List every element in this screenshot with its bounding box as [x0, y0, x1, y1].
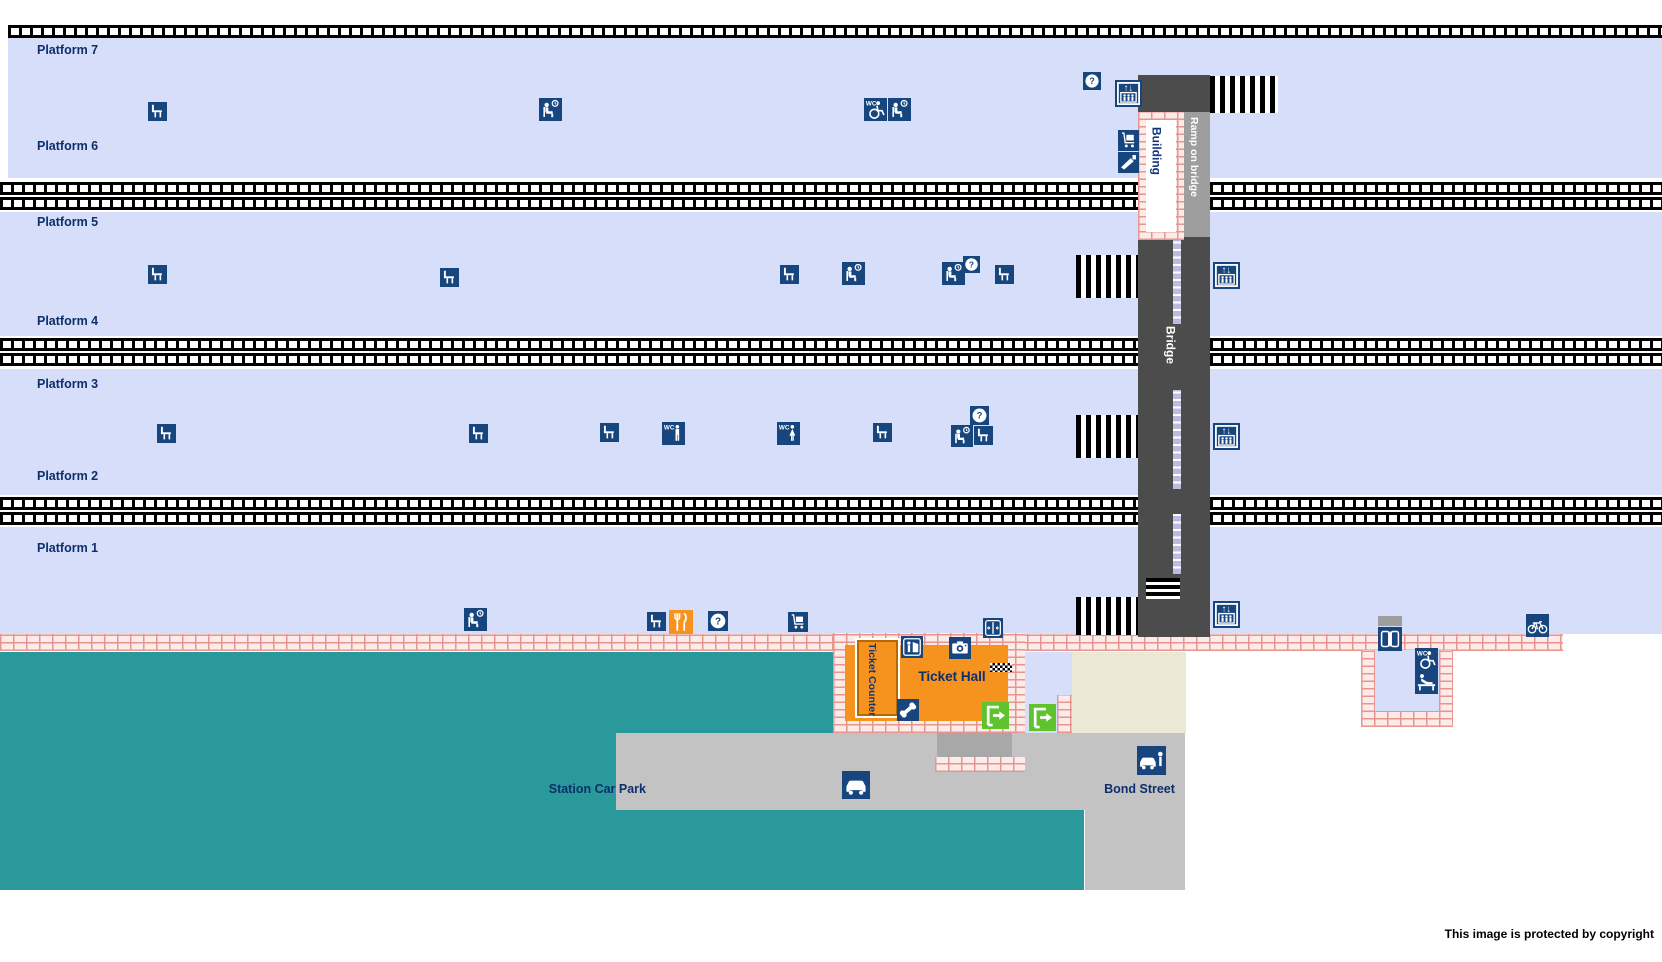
lift-icon: ↑↓	[1213, 262, 1240, 289]
svg-text:WC: WC	[1417, 651, 1428, 658]
waiting-room-icon	[842, 262, 865, 285]
bench-icon	[148, 265, 167, 284]
cycle-storage-icon	[1526, 614, 1549, 637]
stairs-platform-3	[1076, 415, 1138, 458]
label-platform-1: Platform 1	[37, 542, 98, 555]
bench-icon	[440, 268, 459, 287]
waiting-room-icon	[951, 425, 973, 447]
platform-3-2-band	[0, 369, 1662, 495]
platform-7-6-band	[8, 38, 1662, 178]
bridge-ramp-segment-3	[1173, 514, 1181, 574]
track-4	[0, 338, 1662, 351]
platform-1-band	[0, 527, 1662, 634]
bench-icon	[780, 265, 799, 284]
entrance-exit-icon	[1029, 704, 1056, 731]
lift-icon: ↑↓	[1115, 80, 1142, 107]
luggage-trolley-icon	[1118, 130, 1139, 151]
stairs-bridge-top	[1210, 76, 1278, 113]
main-platform-wall	[0, 634, 1563, 651]
label-ramp-on-bridge: Ramp on bridge	[1188, 117, 1199, 197]
green-area-lower	[0, 810, 1084, 890]
toilet-block-bottom-wall	[1361, 711, 1453, 727]
svg-text:?: ?	[715, 616, 721, 627]
track-5	[0, 353, 1662, 366]
label-bridge: Bridge	[1164, 326, 1177, 364]
stairs-platform-5	[1076, 255, 1138, 298]
label-platform-2: Platform 2	[37, 470, 98, 483]
toilet-doorway-canopy	[1378, 616, 1402, 626]
telephone-icon	[897, 699, 919, 721]
label-bond-street: Bond Street	[1092, 783, 1187, 796]
mens-toilet-icon: WC	[662, 422, 685, 445]
waiting-room-icon	[464, 608, 487, 631]
bond-street-road	[1085, 733, 1185, 890]
track-1	[8, 25, 1662, 38]
waiting-room-icon	[942, 262, 965, 285]
luggage-trolley-icon	[788, 612, 808, 632]
corridor-side-wall	[1057, 695, 1072, 733]
help-point-icon: ?	[970, 406, 989, 425]
pick-up-point-icon	[1137, 746, 1166, 775]
svg-text:?: ?	[969, 259, 974, 269]
label-building: Building	[1150, 127, 1163, 175]
help-point-icon: ?	[1083, 72, 1101, 90]
station-map: WC?↑↓?↑↓WCWC?↑↓?↑↓WCPlatform 7Platform 6…	[0, 0, 1662, 962]
accessible-toilet-icon: WC	[1415, 648, 1438, 671]
lift-icon: ↑↓	[1213, 423, 1240, 450]
bench-icon	[647, 612, 666, 631]
ticket-machine-icon	[901, 636, 923, 658]
label-ticket-hall: Ticket Hall	[900, 670, 1004, 684]
refreshments-icon	[669, 610, 693, 634]
station-forecourt	[1072, 652, 1186, 733]
platform-5-4-band	[0, 212, 1662, 336]
bench-icon	[974, 426, 993, 445]
bridge-ramp-segment-1	[1173, 240, 1181, 324]
bench-icon	[469, 424, 488, 443]
hall-rear-wall	[935, 757, 1025, 772]
label-platform-6: Platform 6	[37, 140, 98, 153]
lift-icon: ↑↓	[1213, 601, 1240, 628]
help-point-icon: ?	[963, 256, 980, 273]
label-ticket-counter: Ticket Counter	[866, 643, 877, 716]
label-platform-3: Platform 3	[37, 378, 98, 391]
track-3	[0, 197, 1662, 210]
bench-icon	[995, 265, 1014, 284]
photo-booth-icon	[949, 637, 971, 659]
car-park-icon	[842, 771, 870, 799]
waiting-room-icon	[539, 98, 562, 121]
womens-toilet-icon: WC	[777, 422, 800, 445]
bench-icon	[873, 423, 892, 442]
waiting-room-icon	[888, 98, 911, 121]
ticket-gates-icon	[1118, 152, 1139, 173]
track-2	[0, 182, 1662, 195]
bridge-ramp-segment-2	[1173, 390, 1181, 489]
entrance-exit-icon	[982, 702, 1009, 729]
label-platform-4: Platform 4	[37, 315, 98, 328]
track-7	[0, 512, 1662, 525]
help-point-icon: ?	[708, 611, 728, 631]
green-area-upper	[0, 652, 840, 733]
hall-rear-path	[937, 733, 1012, 757]
baby-change-icon	[1415, 671, 1438, 694]
bench-icon	[157, 424, 176, 443]
svg-text:?: ?	[977, 411, 983, 422]
label-station-car-park: Station Car Park	[518, 783, 646, 796]
svg-text:WC: WC	[664, 425, 675, 432]
bridge-bottom-steps	[1146, 578, 1180, 599]
entrance-doors-icon	[1378, 627, 1402, 651]
label-platform-5: Platform 5	[37, 216, 98, 229]
svg-text:WC: WC	[866, 101, 877, 108]
label-platform-7: Platform 7	[37, 44, 98, 57]
bench-icon	[148, 102, 167, 121]
stairs-platform-1	[1076, 597, 1138, 635]
bench-icon	[600, 423, 619, 442]
track-6	[0, 497, 1662, 510]
ticket-barrier-icon	[983, 618, 1003, 638]
svg-text:WC: WC	[779, 425, 790, 432]
accessible-toilet-icon: WC	[864, 98, 887, 121]
svg-text:?: ?	[1089, 76, 1095, 86]
label-copyright: This image is protected by copyright	[1374, 928, 1654, 941]
